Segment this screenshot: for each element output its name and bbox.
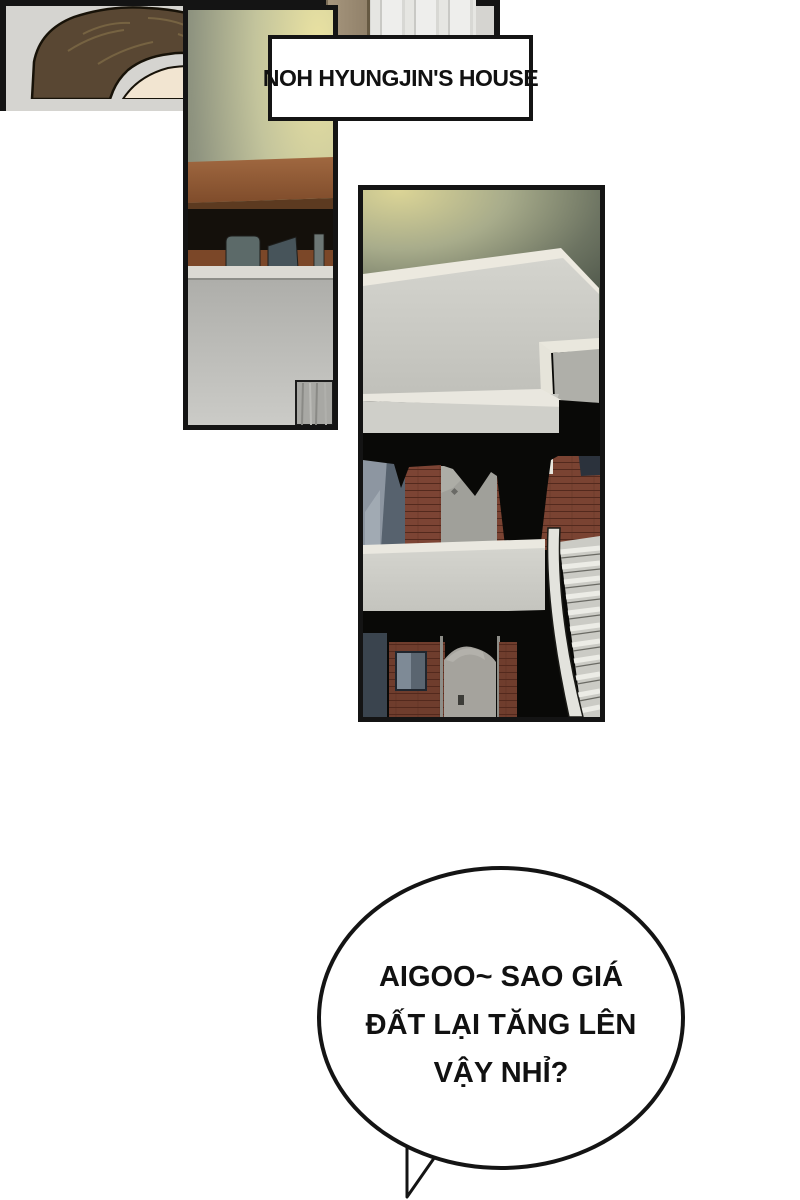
shelf-object-1 xyxy=(226,236,260,268)
balcony-face xyxy=(363,548,545,615)
lower-brick-right xyxy=(499,642,517,717)
bubble-line-1: AIGOO~ SAO GIÁ xyxy=(379,953,623,1001)
lower-roof-surface xyxy=(553,349,599,403)
fascia-right-shadow xyxy=(559,400,600,438)
caption-box: NOH HYUNGJIN'S HOUSE xyxy=(268,35,533,121)
lower-brick-wall xyxy=(389,642,445,717)
bubble-line-3: VẬY NHỈ? xyxy=(434,1049,569,1097)
upper-brick-column xyxy=(405,453,441,550)
window-curtain-small xyxy=(296,381,333,425)
speech-bubble: AIGOO~ SAO GIÁ ĐẤT LẠI TĂNG LÊN VẬY NHỈ? xyxy=(317,866,685,1170)
parapet-edge xyxy=(188,266,333,279)
panel-house-exterior xyxy=(358,185,605,722)
comic-page: NOH HYUNGJIN'S HOUSE xyxy=(0,0,800,1200)
door-post-left xyxy=(440,636,443,717)
parapet-line xyxy=(188,278,333,280)
lower-door xyxy=(444,647,496,718)
shelf-top xyxy=(188,157,333,203)
lower-left-window xyxy=(363,633,387,717)
house-exterior-art xyxy=(363,190,600,717)
caption-text: NOH HYUNGJIN'S HOUSE xyxy=(263,65,538,92)
bubble-line-2: ĐẤT LẠI TĂNG LÊN xyxy=(366,1001,637,1049)
shelf-object-3 xyxy=(314,234,324,268)
